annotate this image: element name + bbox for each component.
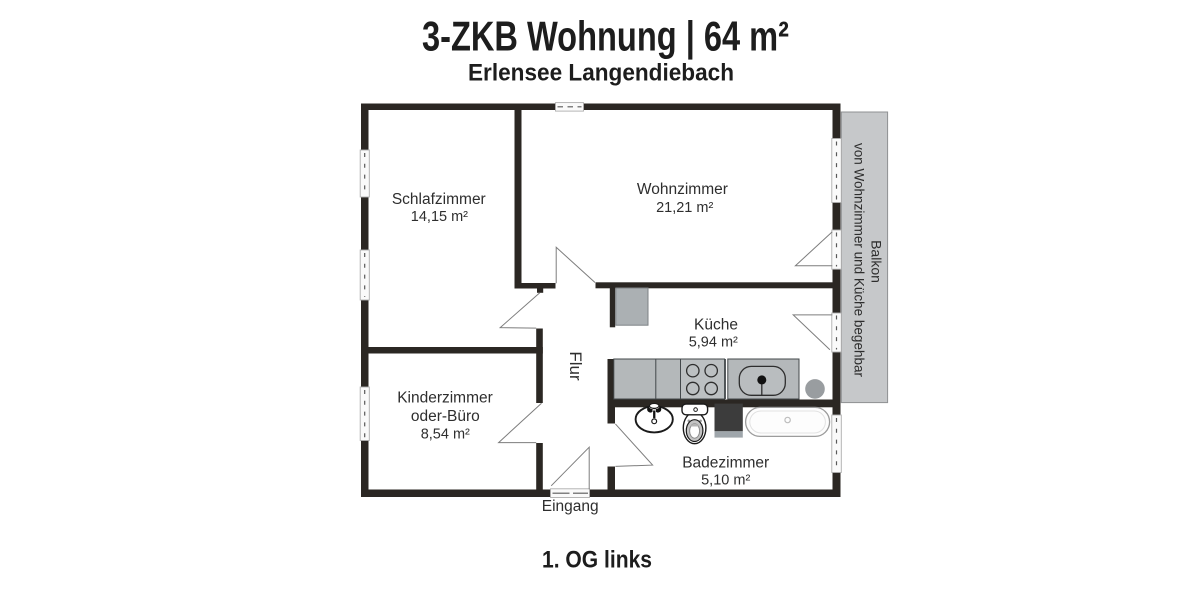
svg-text:Kinderzimmer: Kinderzimmer	[397, 390, 493, 407]
svg-text:8,54 m²: 8,54 m²	[421, 427, 470, 443]
svg-text:Balkon: Balkon	[868, 240, 884, 283]
svg-text:Schlafzimmer: Schlafzimmer	[392, 191, 486, 208]
svg-text:Wohnzimmer: Wohnzimmer	[637, 181, 728, 198]
svg-text:1. OG links: 1. OG links	[542, 547, 652, 574]
svg-text:von Wohnzimmer und Küche begeh: von Wohnzimmer und Küche begehbar	[852, 143, 868, 377]
svg-text:Eingang: Eingang	[542, 498, 599, 515]
svg-text:3-ZKB Wohnung | 64 m²: 3-ZKB Wohnung | 64 m²	[422, 13, 789, 61]
svg-text:Küche: Küche	[694, 316, 738, 333]
svg-text:5,94 m²: 5,94 m²	[689, 335, 738, 351]
svg-text:Flur: Flur	[566, 351, 585, 381]
svg-text:oder-Büro: oder-Büro	[411, 408, 480, 425]
svg-text:5,10 m²: 5,10 m²	[701, 473, 750, 489]
svg-text:21,21 m²: 21,21 m²	[656, 200, 713, 216]
svg-text:Badezimmer: Badezimmer	[682, 454, 769, 471]
svg-text:Erlensee Langendiebach: Erlensee Langendiebach	[468, 60, 734, 87]
svg-text:14,15 m²: 14,15 m²	[411, 209, 468, 225]
